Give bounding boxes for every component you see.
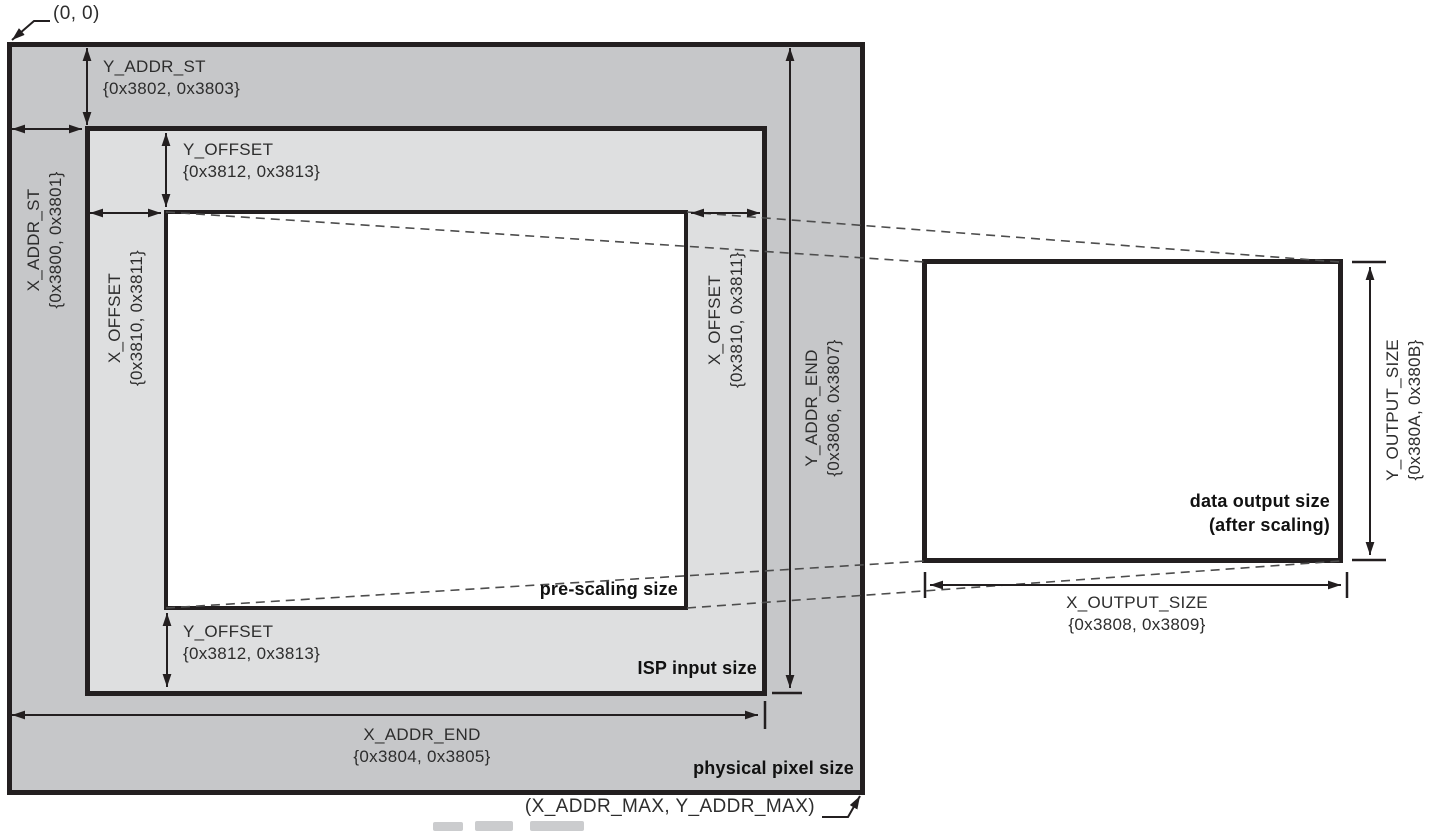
x-offset-right-label: X_OFFSET {0x3810, 0x3811} (704, 252, 748, 388)
x-output-size-registers: {0x3808, 0x3809} (1017, 614, 1257, 636)
x-offset-right-name: X_OFFSET (704, 252, 726, 388)
x-offset-left-registers: {0x3810, 0x3811} (126, 250, 148, 386)
x-offset-left-name: X_OFFSET (104, 250, 126, 386)
y-offset-top-label: Y_OFFSET {0x3812, 0x3813} (183, 139, 320, 183)
pre-scaling-size-label: pre-scaling size (478, 577, 678, 601)
cut-off-text-fragment (530, 821, 584, 831)
data-output-size-label: data output size (after scaling) (1130, 489, 1330, 537)
x-output-size-label: X_OUTPUT_SIZE {0x3808, 0x3809} (1017, 592, 1257, 636)
y-output-size-registers: {0x380A, 0x380B} (1404, 339, 1426, 481)
addr-max-coordinate-label: (X_ADDR_MAX, Y_ADDR_MAX) (480, 796, 815, 818)
physical-pixel-size-label: physical pixel size (654, 756, 854, 780)
x-addr-end-registers: {0x3804, 0x3805} (302, 746, 542, 768)
y-addr-end-label: Y_ADDR_END {0x3806, 0x3807} (801, 339, 845, 476)
y-offset-bottom-name: Y_OFFSET (183, 621, 320, 643)
origin-leader-arrow (12, 21, 50, 40)
y-output-size-name: Y_OUTPUT_SIZE (1382, 339, 1404, 481)
cut-off-text-fragment (433, 822, 463, 831)
y-addr-st-registers: {0x3802, 0x3803} (103, 78, 240, 100)
y-offset-bottom-registers: {0x3812, 0x3813} (183, 643, 320, 665)
origin-coordinate-label: (0, 0) (53, 3, 100, 25)
y-addr-st-name: Y_ADDR_ST (103, 56, 240, 78)
x-addr-st-name: X_ADDR_ST (23, 171, 45, 308)
x-addr-end-name: X_ADDR_END (302, 724, 542, 746)
addr-max-leader-arrow (822, 796, 860, 817)
y-offset-top-name: Y_OFFSET (183, 139, 320, 161)
sensor-windowing-diagram: (0, 0) (X_ADDR_MAX, Y_ADDR_MAX) Y_ADDR_S… (0, 0, 1437, 831)
y-addr-end-registers: {0x3806, 0x3807} (823, 339, 845, 476)
y-offset-bottom-label: Y_OFFSET {0x3812, 0x3813} (183, 621, 320, 665)
isp-input-size-label: ISP input size (557, 656, 757, 680)
y-offset-top-registers: {0x3812, 0x3813} (183, 161, 320, 183)
x-addr-end-label: X_ADDR_END {0x3804, 0x3805} (302, 724, 542, 768)
x-addr-st-label: X_ADDR_ST {0x3800, 0x3801} (23, 171, 67, 308)
x-output-size-name: X_OUTPUT_SIZE (1017, 592, 1257, 614)
y-addr-end-name: Y_ADDR_END (801, 339, 823, 476)
y-output-size-label: Y_OUTPUT_SIZE {0x380A, 0x380B} (1382, 339, 1426, 481)
pre-scaling-area-rect (164, 210, 688, 610)
data-output-size-line1: data output size (1130, 489, 1330, 513)
data-output-size-line2: (after scaling) (1130, 513, 1330, 537)
x-addr-st-registers: {0x3800, 0x3801} (45, 171, 67, 308)
y-addr-st-label: Y_ADDR_ST {0x3802, 0x3803} (103, 56, 240, 100)
cut-off-text-fragment (475, 821, 513, 831)
x-offset-right-registers: {0x3810, 0x3811} (726, 252, 748, 388)
x-offset-left-label: X_OFFSET {0x3810, 0x3811} (104, 250, 148, 386)
